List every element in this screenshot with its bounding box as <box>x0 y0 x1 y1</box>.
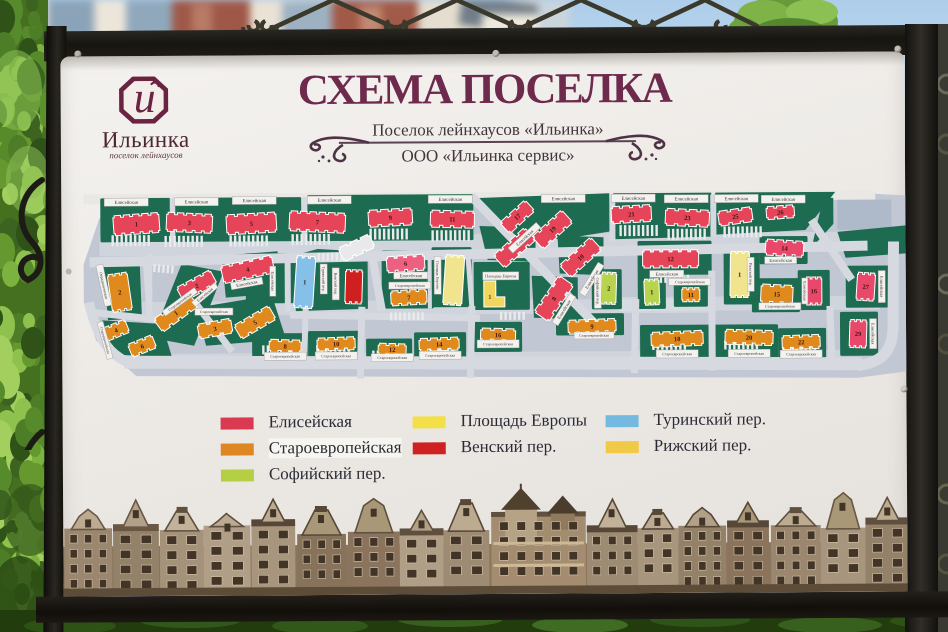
svg-text:Староевропейская: Староевропейская <box>483 342 513 346</box>
svg-text:Елисейская: Елисейская <box>551 197 575 202</box>
svg-text:16: 16 <box>495 332 502 339</box>
svg-text:Староевропейская: Староевропейская <box>200 310 228 314</box>
svg-text:16: 16 <box>811 288 818 295</box>
svg-text:Елисейская: Елисейская <box>769 258 792 263</box>
svg-text:Елисейская: Елисейская <box>879 276 884 298</box>
svg-text:29: 29 <box>855 331 862 338</box>
svg-text:Староевропейская: Староевропейская <box>662 352 692 356</box>
svg-text:Елисейская: Елисейская <box>184 200 208 205</box>
svg-text:Туринский пер.: Туринский пер. <box>321 266 325 291</box>
svg-text:1: 1 <box>488 294 491 301</box>
svg-text:15: 15 <box>773 291 781 298</box>
svg-text:Староевропейская: Староевропейская <box>675 280 705 284</box>
svg-text:Елисейская: Елисейская <box>242 199 266 204</box>
svg-text:Елисейская: Елисейская <box>870 323 875 345</box>
svg-text:Елисейская: Елисейская <box>399 273 422 278</box>
svg-text:Елисейская: Елисейская <box>270 271 275 291</box>
svg-text:Елисейская: Елисейская <box>114 201 138 206</box>
svg-text:1: 1 <box>303 279 307 286</box>
svg-text:Елисейская: Елисейская <box>771 198 795 203</box>
svg-text:Староевропейская: Староевропейская <box>765 305 795 309</box>
svg-text:10: 10 <box>333 341 340 348</box>
svg-text:Елисейская: Елисейская <box>438 198 462 203</box>
svg-text:Староевропейская: Староевропейская <box>425 354 455 358</box>
svg-text:22: 22 <box>798 339 805 346</box>
svg-text:Рижский пер.: Рижский пер. <box>748 263 753 286</box>
svg-text:14: 14 <box>436 341 444 348</box>
svg-text:Софийский пер.: Софийский пер. <box>595 278 600 305</box>
svg-text:Староевропейская: Староевропейская <box>321 354 351 358</box>
svg-text:14: 14 <box>781 245 789 252</box>
svg-text:Староевропейская: Староевропейская <box>270 355 300 359</box>
svg-text:1: 1 <box>650 289 654 296</box>
svg-text:Староевропейская: Староевропейская <box>377 356 407 360</box>
svg-text:12: 12 <box>667 256 674 263</box>
svg-text:1: 1 <box>135 221 139 228</box>
svg-text:Староевропейская: Староевропейская <box>734 352 764 356</box>
svg-text:18: 18 <box>674 336 682 343</box>
svg-text:Елисейская: Елисейская <box>802 281 807 301</box>
svg-text:12: 12 <box>389 347 396 354</box>
svg-text:Староевропейская: Староевропейская <box>395 284 425 288</box>
svg-text:Венский пер.: Венский пер. <box>333 273 338 296</box>
svg-text:11: 11 <box>449 216 455 223</box>
svg-text:Елисейская: Елисейская <box>655 272 678 277</box>
svg-text:20: 20 <box>746 335 753 342</box>
svg-text:Староевропейская: Староевропейская <box>579 334 609 338</box>
svg-text:Староевропейская: Староевропейская <box>786 352 816 356</box>
svg-text:23: 23 <box>684 215 692 222</box>
svg-text:Площадь Европы: Площадь Европы <box>435 261 439 290</box>
svg-text:Елисейская: Елисейская <box>317 199 341 204</box>
svg-text:Площадь Европы: Площадь Европы <box>485 273 516 278</box>
svg-text:2: 2 <box>607 285 610 292</box>
svg-text:21: 21 <box>628 211 635 218</box>
svg-text:Елисейская: Елисейская <box>674 197 698 202</box>
svg-text:11: 11 <box>688 292 694 299</box>
svg-text:1: 1 <box>738 272 741 279</box>
svg-text:27: 27 <box>862 284 870 291</box>
svg-text:Елисейская: Елисейская <box>621 197 645 202</box>
svg-text:Елисейская: Елисейская <box>724 197 748 202</box>
